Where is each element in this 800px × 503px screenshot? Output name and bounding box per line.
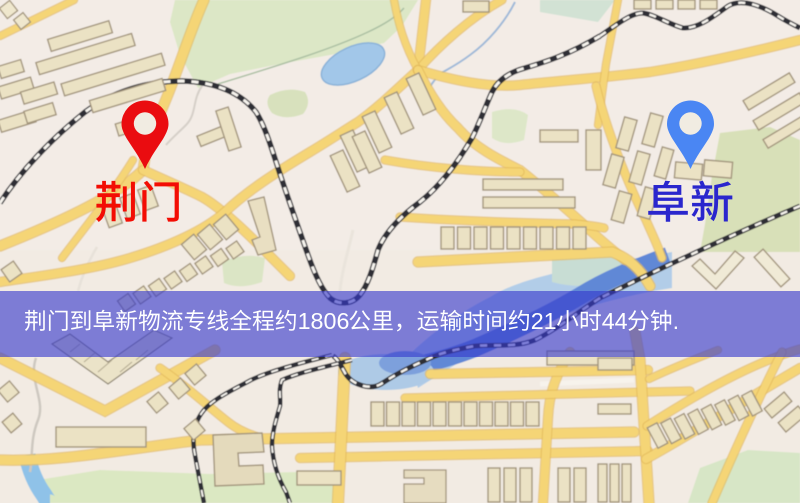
svg-text:1806: 1806 [298,308,350,334]
svg-text:.: . [673,308,679,334]
svg-text:44: 44 [602,308,628,334]
svg-text:21: 21 [531,308,557,334]
